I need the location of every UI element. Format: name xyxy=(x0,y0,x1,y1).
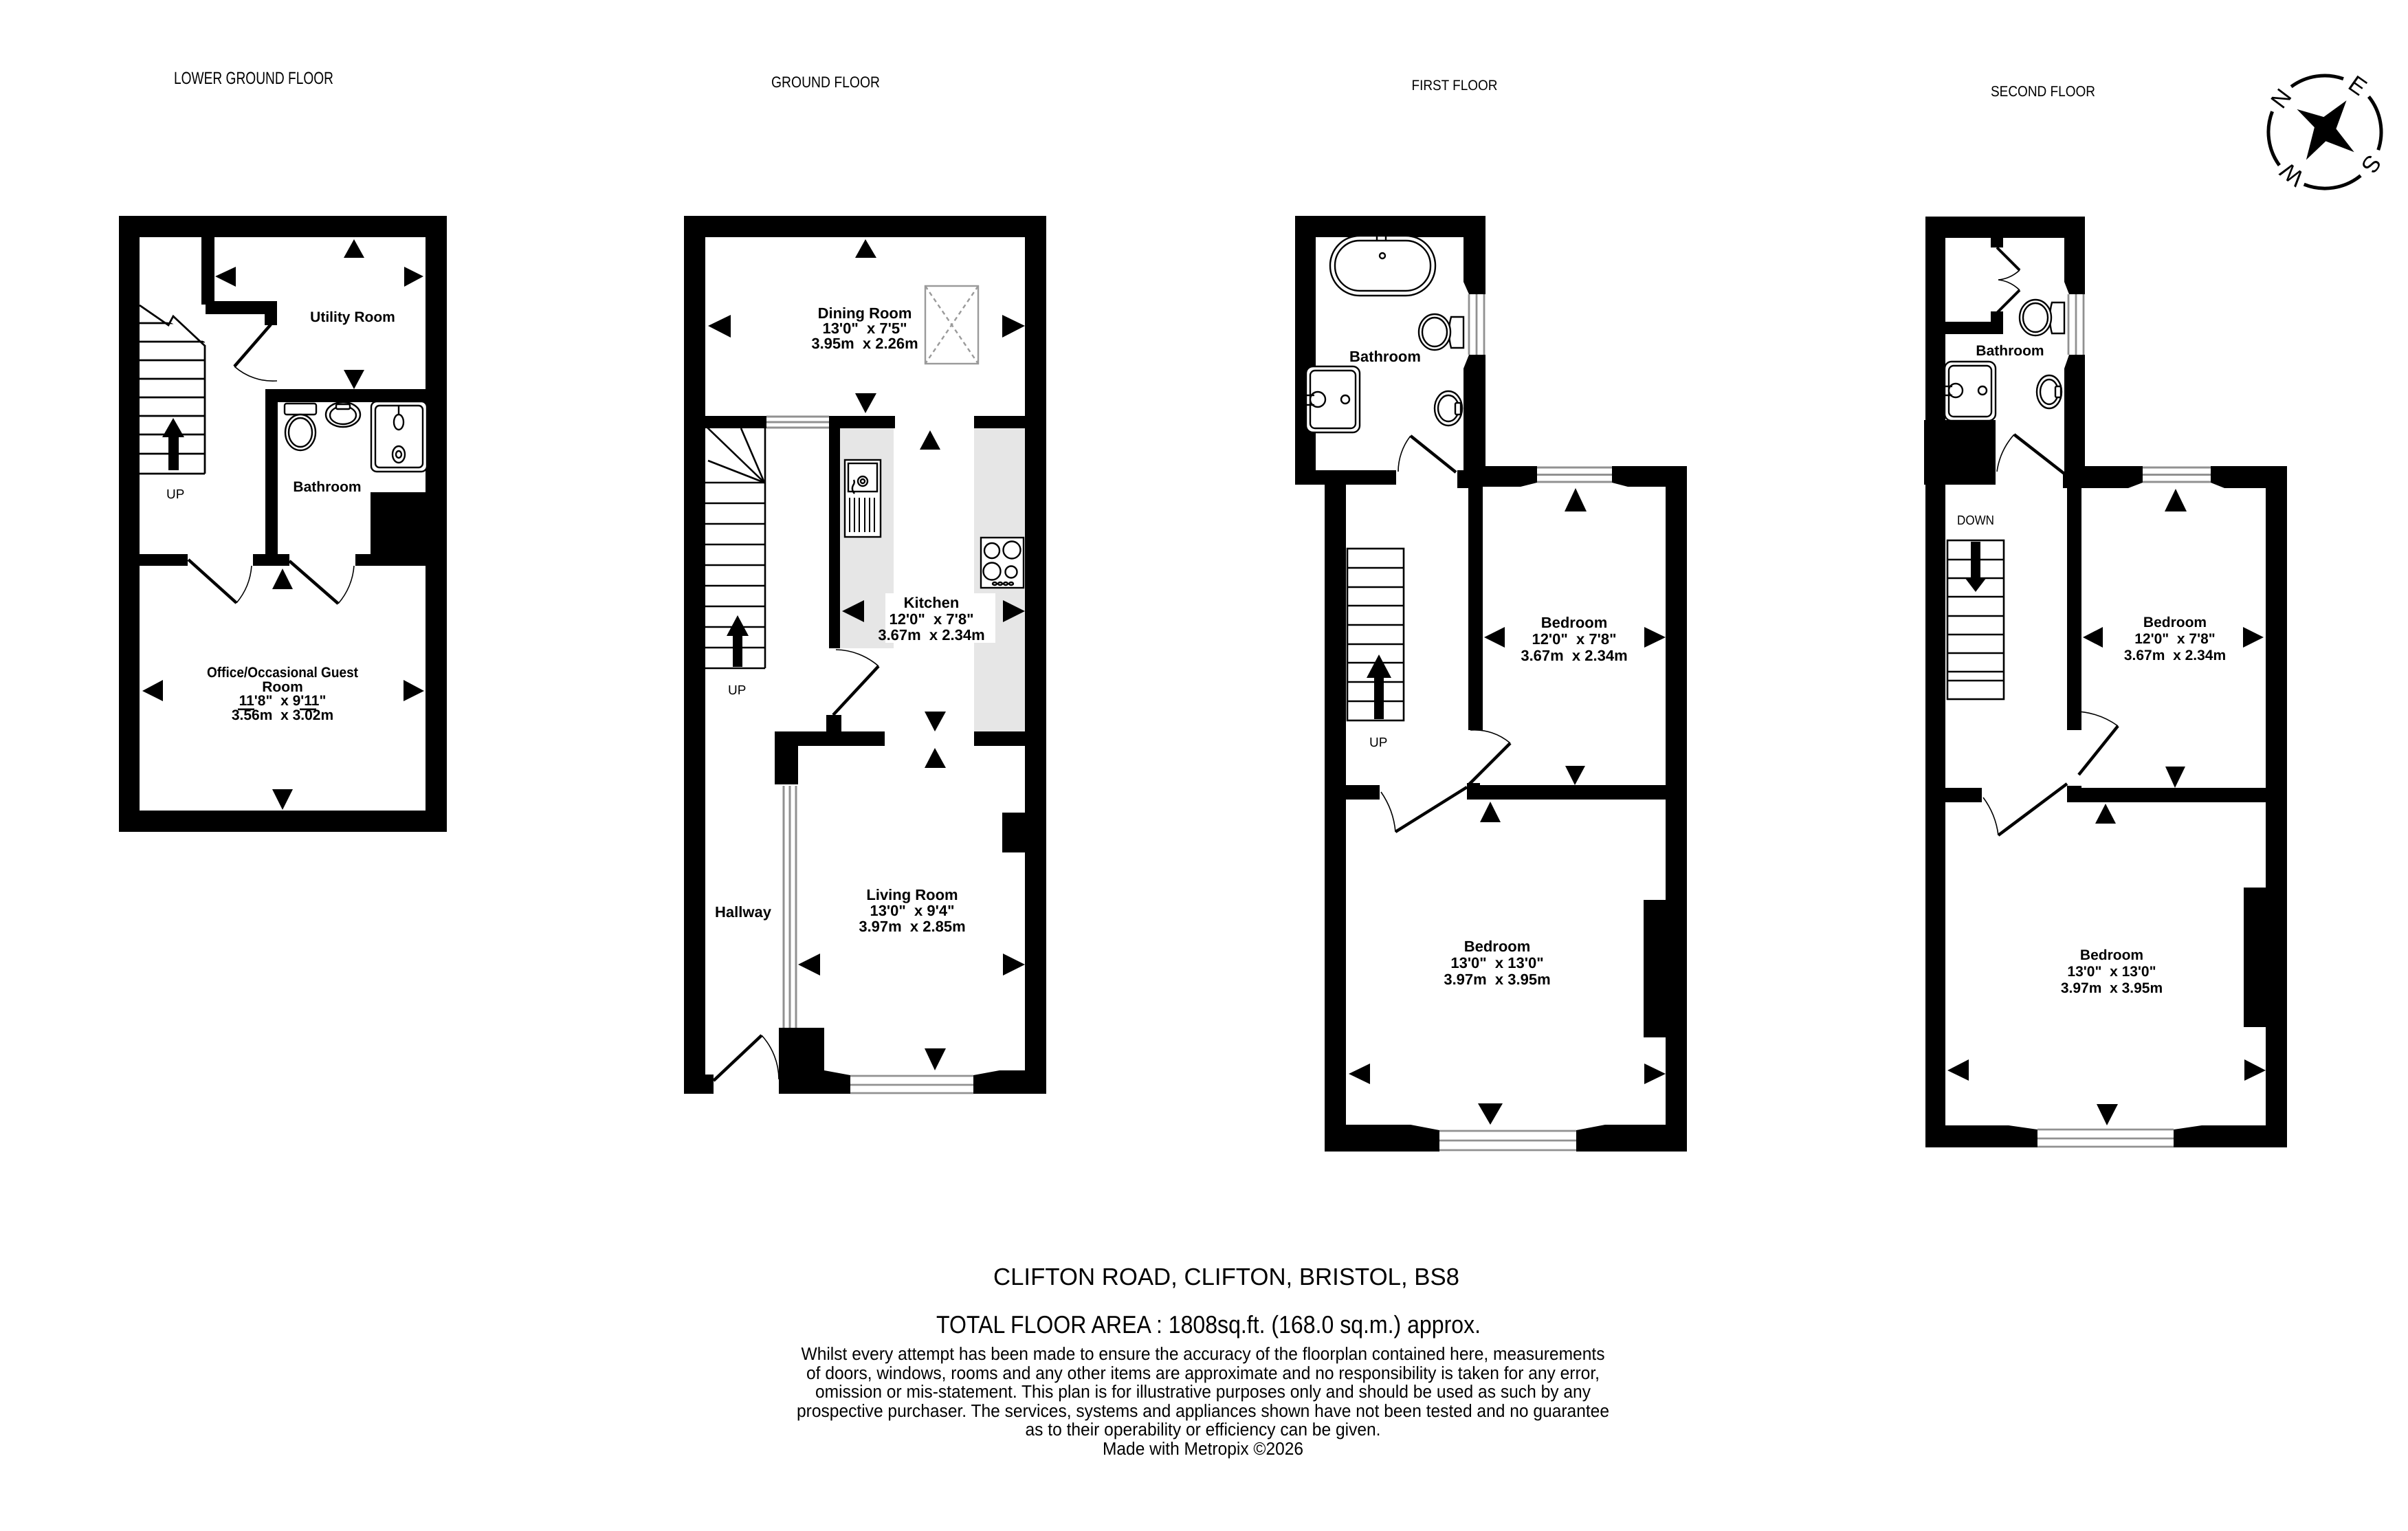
svg-text:3.95m x 2.26m: 3.95m x 2.26m xyxy=(811,335,918,352)
svg-text:Bedroom: Bedroom xyxy=(2080,947,2143,963)
svg-text:3.67m x 2.34m: 3.67m x 2.34m xyxy=(1521,647,1627,664)
svg-text:Hallway: Hallway xyxy=(715,903,772,921)
svg-text:CLIFTON ROAD, CLIFTON, BRISTOL: CLIFTON ROAD, CLIFTON, BRISTOL, BS8 xyxy=(993,1264,1459,1290)
svg-text:UP: UP xyxy=(728,683,746,698)
svg-text:12'0" x 7'8": 12'0" x 7'8" xyxy=(1532,630,1616,648)
svg-text:Kitchen: Kitchen xyxy=(904,594,960,611)
svg-text:LOWER GROUND FLOOR: LOWER GROUND FLOOR xyxy=(174,69,333,88)
svg-text:3.97m x 2.85m: 3.97m x 2.85m xyxy=(859,918,965,935)
svg-text:as to their operability or eff: as to their operability or efficiency ca… xyxy=(1026,1419,1381,1440)
svg-text:Bathroom: Bathroom xyxy=(1976,343,2044,359)
svg-text:Bathroom: Bathroom xyxy=(1349,348,1421,365)
svg-text:3.67m x 2.34m: 3.67m x 2.34m xyxy=(2124,648,2226,663)
svg-text:Bathroom: Bathroom xyxy=(293,479,361,495)
svg-text:13'0" x 13'0": 13'0" x 13'0" xyxy=(2067,964,2156,980)
svg-text:of doors, windows, rooms and a: of doors, windows, rooms and any other i… xyxy=(806,1363,1600,1383)
svg-text:Made with Metropix ©2026: Made with Metropix ©2026 xyxy=(1103,1438,1303,1459)
svg-text:Bedroom: Bedroom xyxy=(1541,614,1608,631)
svg-text:UP: UP xyxy=(166,487,184,502)
svg-text:UP: UP xyxy=(1369,736,1387,750)
svg-text:DOWN: DOWN xyxy=(1957,514,1994,528)
svg-text:Bedroom: Bedroom xyxy=(2143,615,2207,630)
svg-text:Utility Room: Utility Room xyxy=(310,309,395,325)
svg-text:13'0" x 9'4": 13'0" x 9'4" xyxy=(870,902,954,919)
svg-text:3.56m x 3.02m: 3.56m x 3.02m xyxy=(232,707,333,723)
svg-text:12'0" x 7'8": 12'0" x 7'8" xyxy=(889,610,973,628)
svg-text:GROUND FLOOR: GROUND FLOOR xyxy=(771,74,880,91)
svg-text:Whilst every attempt has been: Whilst every attempt has been made to en… xyxy=(802,1343,1605,1364)
svg-text:12'0" x 7'8": 12'0" x 7'8" xyxy=(2134,631,2215,647)
svg-text:SECOND FLOOR: SECOND FLOOR xyxy=(1991,83,2095,100)
svg-text:3.67m x 2.34m: 3.67m x 2.34m xyxy=(878,626,984,643)
svg-text:3.97m x 3.95m: 3.97m x 3.95m xyxy=(1444,971,1550,988)
svg-text:prospective purchaser. The ser: prospective purchaser. The services, sys… xyxy=(797,1400,1609,1421)
svg-text:3.97m x 3.95m: 3.97m x 3.95m xyxy=(2061,980,2163,996)
svg-text:Bedroom: Bedroom xyxy=(1464,938,1531,955)
svg-text:omission or mis-statement. Thi: omission or mis-statement. This plan is … xyxy=(815,1381,1591,1402)
svg-text:TOTAL FLOOR AREA : 1808sq.ft.: TOTAL FLOOR AREA : 1808sq.ft. (168.0 sq.… xyxy=(936,1310,1481,1339)
svg-text:11'8" x 9'11": 11'8" x 9'11" xyxy=(239,693,327,709)
svg-text:Living Room: Living Room xyxy=(866,886,958,903)
svg-text:Office/Occasional Guest: Office/Occasional Guest xyxy=(207,665,358,681)
svg-text:FIRST FLOOR: FIRST FLOOR xyxy=(1412,78,1498,93)
svg-text:13'0" x 13'0": 13'0" x 13'0" xyxy=(1450,954,1543,971)
